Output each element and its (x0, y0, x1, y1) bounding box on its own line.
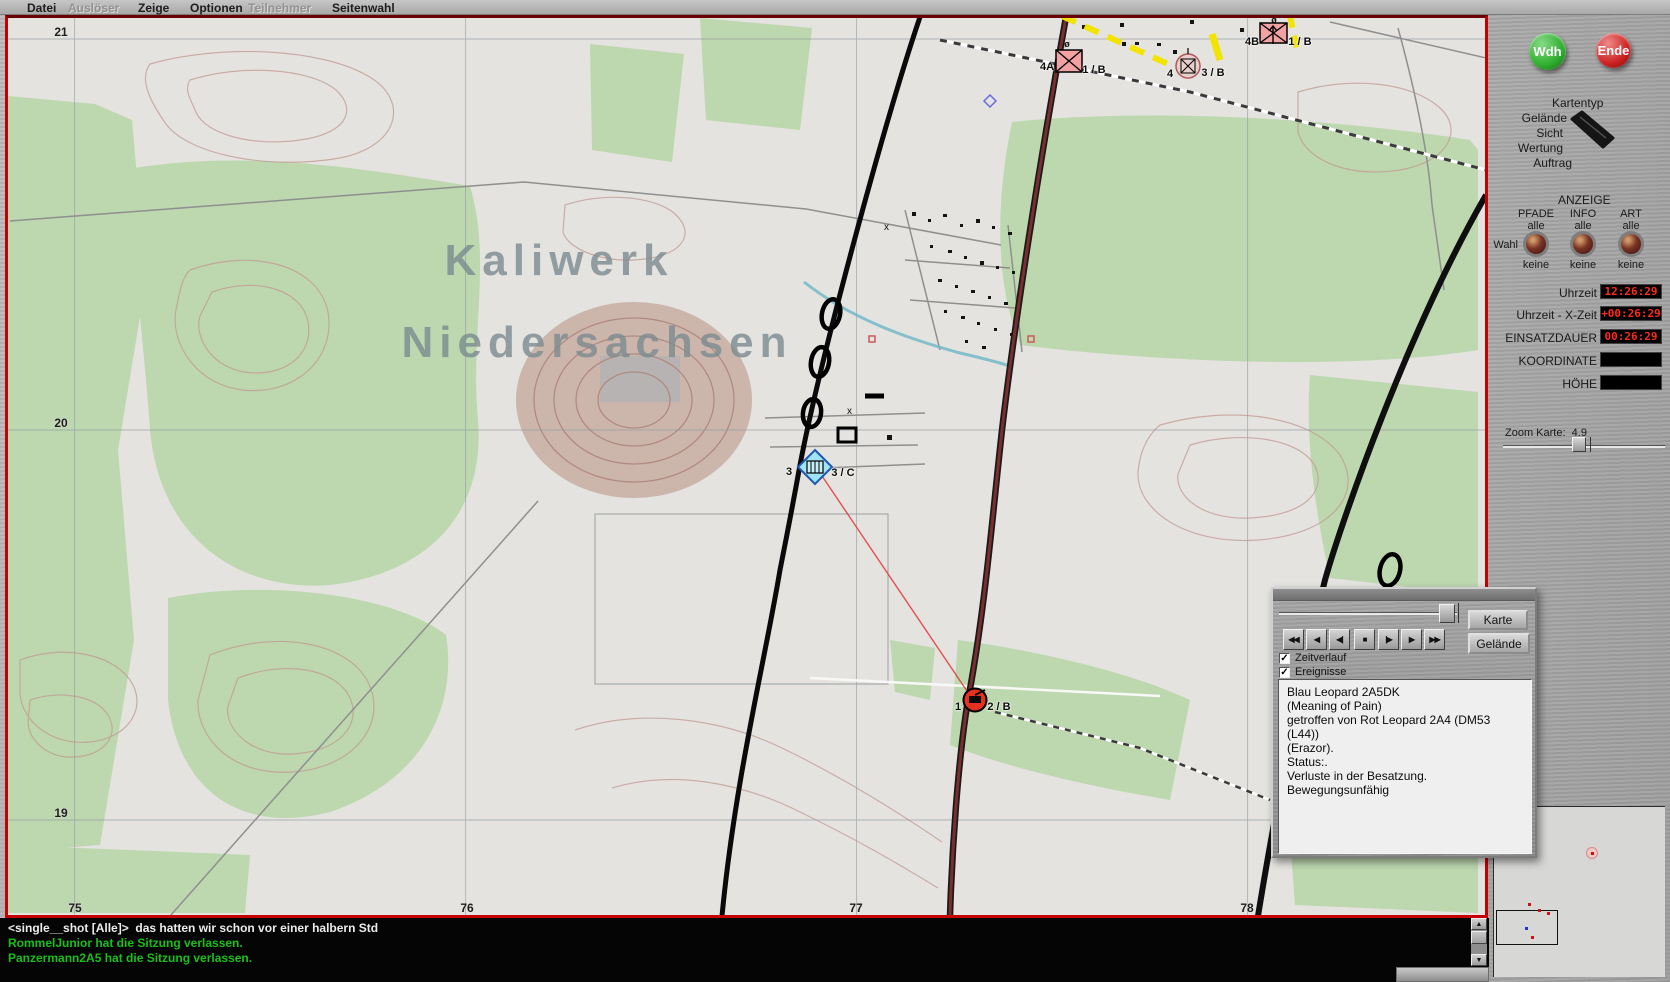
unit-4A-left-label: 4A (1040, 61, 1054, 73)
anzeige-pfade-keine: keine (1514, 259, 1558, 271)
anzeige-title: ANZEIGE (1558, 193, 1611, 207)
kartentyp-selector-knob[interactable] (1560, 105, 1630, 155)
minimap-red-dot (1538, 909, 1541, 912)
svg-text:x: x (847, 406, 852, 417)
unit-4A-symbol (1056, 50, 1082, 72)
unit-2B-symbol (964, 689, 987, 712)
unit-3C-left-label: 3 (786, 466, 792, 478)
replay-panel[interactable]: ◀◀ ◀ ◀| ■ |▶ ▶ ▶▶ Karte Gelände ✓ Zeitve… (1271, 587, 1537, 858)
rewind-button[interactable]: ◀ (1306, 629, 1327, 650)
kartentyp-option-auftrag[interactable]: Auftrag (1490, 156, 1572, 170)
unit-3B-right-label: 3 / B (1201, 67, 1224, 79)
menu-teilnehmer: Teilnehmer (248, 1, 311, 15)
ereignisse-label: Ereignisse (1295, 666, 1346, 678)
minimap-blue-dot (1525, 927, 1528, 930)
anzeige-pfade-knob[interactable] (1526, 234, 1546, 254)
scrollbar-thumb[interactable] (1471, 931, 1487, 944)
grid-col-label: 78 (1240, 901, 1253, 915)
event-text-area[interactable]: Blau Leopard 2A5DK (Meaning of Pain) get… (1278, 679, 1532, 854)
unit-3C-right-label: 3 / C (831, 467, 854, 479)
replay-slider-track[interactable] (1279, 612, 1457, 615)
menu-bar: Datei Auslöser Zeige Optionen Teilnehmer… (0, 0, 1670, 15)
uhrzeit-label: Uhrzeit (1490, 286, 1597, 300)
anzeige-col-pfade: PFADE (1514, 208, 1558, 220)
grid-col-label: 76 (460, 901, 473, 915)
minimap-red-dot (1528, 903, 1531, 906)
watermark-niedersachsen: Niedersachsen (401, 318, 792, 368)
unit-4B-symbol (1260, 23, 1287, 44)
menu-optionen[interactable]: Optionen (190, 1, 243, 15)
kartentyp-option-gelaende[interactable]: Gelände (1490, 111, 1567, 125)
karte-button[interactable]: Karte (1468, 610, 1528, 630)
scroll-down-icon[interactable]: ▼ (1471, 954, 1487, 966)
koordinate-label: KOORDINATE (1490, 354, 1597, 368)
menu-datei[interactable]: Datei (27, 1, 56, 15)
minimap-red-dot (1531, 936, 1534, 939)
zeitverlauf-label: Zeitverlauf (1295, 652, 1346, 664)
kartentyp-option-wertung[interactable]: Wertung (1490, 141, 1563, 155)
replay-slider-tick (1458, 603, 1459, 623)
event-line: (L44)) (1287, 727, 1523, 741)
x-zeit-display: +00:26:29 (1600, 306, 1662, 321)
zoom-slider-tick (1590, 437, 1591, 452)
grid-row-label: 21 (54, 25, 67, 39)
watermark-kaliwerk: Kaliwerk (445, 236, 674, 286)
grid-col-label: 75 (68, 901, 81, 915)
event-line: Blau Leopard 2A5DK (1287, 685, 1523, 699)
rewind-fast-button[interactable]: ◀◀ (1283, 629, 1304, 650)
menu-seitenwahl[interactable]: Seitenwahl (332, 1, 395, 15)
scroll-up-icon[interactable]: ▲ (1471, 918, 1487, 930)
anzeige-info-keine: keine (1561, 259, 1605, 271)
event-line: Bewegungsunfähig (1287, 783, 1523, 797)
anzeige-pfade-alle: alle (1514, 220, 1558, 232)
replay-panel-titlebar[interactable] (1273, 589, 1535, 601)
step-back-button[interactable]: ◀| (1329, 629, 1350, 650)
anzeige-art-knob[interactable] (1621, 234, 1641, 254)
play-button[interactable]: ▶ (1401, 629, 1422, 650)
anzeige-col-info: INFO (1561, 208, 1605, 220)
kartentyp-option-sicht[interactable]: Sicht (1490, 126, 1563, 140)
einsatzdauer-display: 00:26:29 (1600, 329, 1662, 344)
menu-ausloeser: Auslöser (68, 1, 119, 15)
gelaende-button[interactable]: Gelände (1468, 633, 1530, 654)
replay-slider-handle[interactable] (1439, 604, 1455, 623)
svg-text:x: x (884, 222, 889, 233)
chat-message: <single__shot [Alle]> das hatten wir sch… (8, 921, 378, 935)
minimap-red-dot (1591, 852, 1594, 855)
step-forward-button[interactable]: |▶ (1378, 629, 1399, 650)
unit-4B-left-label: 4B (1245, 36, 1259, 48)
unit-2B-left-label: 1 (955, 701, 961, 713)
anzeige-art-keine: keine (1609, 259, 1653, 271)
event-line: (Erazor). (1287, 741, 1523, 755)
hoehe-display (1600, 375, 1662, 390)
chat-scrollbar[interactable]: ▲ ▼ (1471, 918, 1487, 966)
ereignisse-checkbox[interactable]: ✓ (1279, 667, 1290, 678)
uhrzeit-display: 12:26:29 (1600, 284, 1662, 299)
anzeige-info-alle: alle (1561, 220, 1605, 232)
event-line: (Meaning of Pain) (1287, 699, 1523, 713)
ende-button[interactable]: Ende (1596, 33, 1631, 68)
anzeige-art-alle: alle (1609, 220, 1653, 232)
boundary-rect (595, 514, 888, 684)
chat-system-message: RommelJunior hat die Sitzung verlassen. (8, 936, 243, 950)
grid-row-label: 19 (54, 806, 67, 820)
unit-2B-right-label: 2 / B (987, 701, 1010, 713)
minimap-red-dot (1547, 912, 1550, 915)
grid-col-label: 77 (849, 901, 862, 915)
resize-grip[interactable] (1396, 967, 1489, 982)
event-line: getroffen von Rot Leopard 2A4 (DM53 (1287, 713, 1523, 727)
anzeige-col-art: ART (1609, 208, 1653, 220)
map-drawing: x x (8, 18, 1485, 915)
unit-4A-marker: ø (1064, 39, 1070, 49)
hoehe-label: HÖHE (1490, 377, 1597, 391)
event-line: Verluste in der Besatzung. (1287, 769, 1523, 783)
x-zeit-label: Uhrzeit - X-Zeit (1490, 308, 1597, 322)
anzeige-wahl-label: Wahl (1468, 239, 1518, 251)
unit-4B-marker: ø (1271, 15, 1277, 25)
forward-fast-button[interactable]: ▶▶ (1424, 629, 1445, 650)
unit-3B-left-label: 4 (1167, 68, 1173, 80)
menu-zeige[interactable]: Zeige (138, 1, 169, 15)
stop-button[interactable]: ■ (1354, 629, 1375, 650)
einsatzdauer-label: EINSATZDAUER (1490, 331, 1597, 345)
zeitverlauf-checkbox[interactable]: ✓ (1279, 653, 1290, 664)
unit-4A-right-label: 1 / B (1082, 64, 1105, 76)
event-line: Status:. (1287, 755, 1523, 769)
zoom-slider-handle[interactable] (1572, 437, 1586, 452)
grid-row-label: 20 (54, 416, 67, 430)
wdh-button[interactable]: Wdh (1529, 33, 1566, 70)
unit-4B-right-label: 1 / B (1288, 36, 1311, 48)
map-area[interactable]: x x (5, 15, 1488, 918)
zoom-karte-text: Zoom Karte: (1505, 427, 1566, 439)
anzeige-info-knob[interactable] (1573, 234, 1593, 254)
chat-area[interactable]: <single__shot [Alle]> das hatten wir sch… (0, 918, 1489, 982)
unit-3B-symbol (1176, 48, 1200, 78)
koordinate-display (1600, 352, 1662, 367)
chat-system-message: Panzermann2A5 hat die Sitzung verlassen. (8, 951, 252, 965)
